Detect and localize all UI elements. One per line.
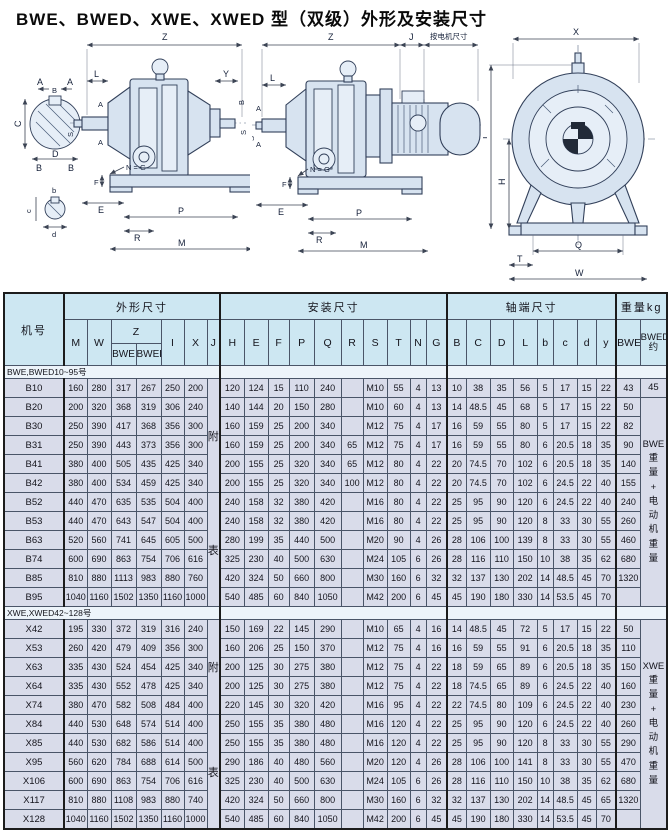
spec-cell: 48.5 — [553, 569, 577, 588]
spec-cell: 40 — [596, 474, 616, 493]
model-cell: B95 — [4, 588, 64, 607]
col-header-y: y — [596, 320, 616, 366]
spec-cell: 6 — [537, 474, 553, 493]
spec-cell: 1160 — [87, 588, 111, 607]
spec-cell: 680 — [616, 550, 640, 569]
spec-cell: 250 — [220, 734, 244, 753]
spec-cell: 22 — [426, 455, 447, 474]
spec-cell — [341, 734, 363, 753]
spec-cell: 62 — [596, 772, 616, 791]
dim-label-A: A — [37, 77, 43, 87]
spec-cell: 6 — [537, 455, 553, 474]
spec-cell: 53.5 — [553, 810, 577, 830]
spec-cell: 1050 — [314, 588, 341, 607]
spec-cell: 280 — [220, 531, 244, 550]
spec-cell: 1050 — [314, 810, 341, 830]
dim-label-R: R — [134, 233, 141, 243]
dim-label-L: L — [270, 73, 275, 83]
spec-cell: 186 — [244, 753, 268, 772]
spec-cell: 400 — [184, 696, 207, 715]
group-header-shaft: 轴端尺寸 — [447, 293, 616, 320]
model-cell: X95 — [4, 753, 64, 772]
section-filler — [220, 607, 447, 620]
spec-cell: 1320 — [616, 569, 640, 588]
spec-cell: 480 — [314, 734, 341, 753]
drawing-bwe-side-view: A A B C D B B b c d — [10, 27, 250, 289]
spec-cell: 400 — [184, 734, 207, 753]
section-header-row: BWE,BWED10~95号 — [4, 366, 667, 379]
spec-cell: 754 — [136, 550, 161, 569]
spec-cell: 32 — [268, 512, 289, 531]
spec-cell: 16 — [447, 436, 466, 455]
spec-cell: 22 — [268, 620, 289, 639]
spec-cell: 25 — [268, 417, 289, 436]
spec-cell — [341, 569, 363, 588]
spec-cell — [341, 493, 363, 512]
spec-cell: 56 — [513, 379, 537, 398]
spec-cell: 8 — [537, 531, 553, 550]
spec-cell: 6 — [537, 658, 553, 677]
spec-cell: 4 — [410, 455, 426, 474]
spec-cell: 4 — [410, 734, 426, 753]
spec-cell: M12 — [363, 455, 387, 474]
dim-label-R: R — [316, 235, 323, 245]
spec-cell: 320 — [87, 398, 111, 417]
section-mark-A: A — [98, 138, 103, 147]
spec-cell: 480 — [314, 715, 341, 734]
spec-cell: 20.5 — [553, 436, 577, 455]
spec-cell: 425 — [161, 455, 184, 474]
spec-cell: 706 — [161, 550, 184, 569]
model-cell: B42 — [4, 474, 64, 493]
spec-cell: 8 — [537, 734, 553, 753]
dim-label-B: B — [237, 100, 246, 105]
spec-cell: 95 — [466, 512, 490, 531]
spec-row: X5326042047940935630016020625150370M1275… — [4, 639, 667, 658]
spec-cell: 425 — [161, 658, 184, 677]
spec-cell: 55 — [596, 734, 616, 753]
spec-cell: 125 — [244, 677, 268, 696]
spec-cell — [341, 696, 363, 715]
section-mark-A: A — [98, 100, 103, 109]
col-header-I: I — [161, 320, 184, 366]
base — [521, 223, 635, 235]
spec-cell: 70 — [490, 474, 513, 493]
spec-cell: 680 — [616, 772, 640, 791]
spec-cell: 45 — [490, 398, 513, 417]
spec-cell: 145 — [289, 620, 314, 639]
spec-cell: 40 — [596, 715, 616, 734]
spec-cell: 380 — [64, 474, 87, 493]
spec-cell: 200 — [220, 474, 244, 493]
spec-cell: 125 — [244, 658, 268, 677]
spec-cell: 35 — [490, 379, 513, 398]
spec-cell: 74.5 — [466, 474, 490, 493]
spec-row: B52440470635535504400表24015832380420M168… — [4, 493, 667, 512]
spec-cell: 55 — [490, 417, 513, 436]
spec-cell: 120 — [513, 734, 537, 753]
spec-cell: 32 — [426, 791, 447, 810]
spec-cell: 90 — [387, 531, 410, 550]
spec-cell: 1502 — [111, 588, 136, 607]
col-header-L: L — [513, 320, 537, 366]
spec-cell: 80 — [387, 474, 410, 493]
spec-cell: M10 — [363, 379, 387, 398]
spec-cell: 6 — [410, 569, 426, 588]
spec-cell: 200 — [289, 417, 314, 436]
spec-cell: 25 — [268, 455, 289, 474]
spec-cell: 80 — [387, 512, 410, 531]
spec-cell: 75 — [387, 639, 410, 658]
spec-cell: 688 — [136, 753, 161, 772]
spec-cell: 800 — [314, 569, 341, 588]
spec-cell: 22 — [447, 696, 466, 715]
spec-cell: 35 — [596, 455, 616, 474]
spec-cell: 24.5 — [553, 493, 577, 512]
spec-cell — [341, 620, 363, 639]
spec-cell: 800 — [314, 791, 341, 810]
dim-label-W: W — [575, 268, 584, 278]
spec-cell: 48.5 — [466, 620, 490, 639]
spec-cell: 32 — [268, 493, 289, 512]
spec-cell: 600 — [64, 772, 87, 791]
model-cell: B41 — [4, 455, 64, 474]
spec-cell: 25 — [447, 493, 466, 512]
spec-cell: 160 — [387, 791, 410, 810]
spec-cell: 22 — [426, 512, 447, 531]
spec-cell: 200 — [387, 810, 410, 830]
spec-cell: 480 — [289, 753, 314, 772]
dim-label-J: J — [409, 32, 414, 42]
spec-cell: 330 — [87, 620, 111, 639]
spec-cell: 90 — [490, 734, 513, 753]
lifting-eyebolt — [340, 61, 356, 77]
spec-cell: 390 — [87, 436, 111, 455]
model-cell: B31 — [4, 436, 64, 455]
dim-label-S: S — [66, 132, 75, 137]
spec-cell: 250 — [64, 417, 87, 436]
spec-cell: 45 — [577, 569, 596, 588]
spec-cell: 300 — [184, 436, 207, 455]
spec-cell: 22 — [426, 715, 447, 734]
dim-label-B: B — [68, 163, 74, 173]
spec-cell: 105 — [387, 550, 410, 569]
spec-cell: 50 — [268, 791, 289, 810]
spec-row: X10660069086375470661632523040500630M241… — [4, 772, 667, 791]
spec-cell: 141 — [513, 753, 537, 772]
col-header-c: c — [553, 320, 577, 366]
spec-cell: 199 — [244, 531, 268, 550]
spec-cell: 514 — [161, 715, 184, 734]
spec-cell: 90 — [490, 512, 513, 531]
spec-cell: 22 — [426, 658, 447, 677]
model-cell: B52 — [4, 493, 64, 512]
spec-row: X128104011601502135011601000540485608401… — [4, 810, 667, 830]
spec-cell: 240 — [220, 512, 244, 531]
shaft-section-detail — [30, 99, 80, 149]
dim-label-A: A — [67, 77, 73, 87]
col-header-F: F — [268, 320, 289, 366]
spec-cell: 380 — [64, 455, 87, 474]
dim-label-M: M — [360, 240, 368, 250]
spec-cell: 6 — [537, 639, 553, 658]
dim-label-E: E — [278, 207, 284, 217]
spec-cell: 158 — [244, 493, 268, 512]
spec-cell: 35 — [268, 531, 289, 550]
spec-cell: 70 — [596, 810, 616, 830]
spec-cell: 540 — [220, 588, 244, 607]
spec-cell: 38 — [553, 550, 577, 569]
spec-cell: 24.5 — [553, 677, 577, 696]
group-header-weight: 重量kg — [616, 293, 667, 320]
spec-cell: 145 — [244, 696, 268, 715]
spec-cell: 33 — [553, 531, 577, 550]
spec-row: B312503904433733563001601592520034065M12… — [4, 436, 667, 455]
spec-cell: 5 — [537, 417, 553, 436]
spec-cell: 290 — [314, 620, 341, 639]
spec-row: B7460069086375470661632523040500630M2410… — [4, 550, 667, 569]
spec-cell: 390 — [87, 417, 111, 436]
spec-cell: 4 — [410, 512, 426, 531]
spec-cell: 13 — [426, 379, 447, 398]
spec-cell: 33 — [553, 512, 577, 531]
spec-cell: 26 — [426, 753, 447, 772]
spec-cell: 30 — [577, 753, 596, 772]
spec-cell: 137 — [466, 791, 490, 810]
spec-cell: 55 — [490, 436, 513, 455]
spec-cell: 45 — [426, 810, 447, 830]
spec-cell: 267 — [136, 379, 161, 398]
spec-cell: 645 — [136, 531, 161, 550]
spec-cell: 180 — [490, 588, 513, 607]
spec-cell: 6 — [537, 436, 553, 455]
spec-cell: 14 — [447, 398, 466, 417]
spec-cell: 32 — [426, 569, 447, 588]
spec-cell: 340 — [314, 474, 341, 493]
spec-cell: 22 — [596, 417, 616, 436]
spec-cell: 40 — [268, 550, 289, 569]
spec-cell: 485 — [244, 588, 268, 607]
spec-cell: 240 — [184, 398, 207, 417]
spec-cell: 22 — [577, 677, 596, 696]
spec-cell: 530 — [87, 734, 111, 753]
spec-cell: 30 — [577, 512, 596, 531]
spec-cell: 22 — [577, 696, 596, 715]
spec-cell: 22 — [426, 493, 447, 512]
spec-cell: 159 — [244, 417, 268, 436]
spec-cell: 290 — [616, 734, 640, 753]
j-note-cell: 表 — [207, 715, 220, 830]
spec-cell: 40 — [596, 677, 616, 696]
spec-cell: 250 — [161, 379, 184, 398]
spec-cell: 454 — [136, 658, 161, 677]
spec-cell: 200 — [387, 588, 410, 607]
spec-row: X6333543052445442534020012530275380M1275… — [4, 658, 667, 677]
spec-cell: 230 — [616, 696, 640, 715]
spec-cell: 158 — [244, 512, 268, 531]
model-cell: B63 — [4, 531, 64, 550]
spec-cell: 4 — [410, 474, 426, 493]
motor-end-cap — [440, 103, 480, 155]
spec-cell: 40 — [268, 772, 289, 791]
spec-cell: 150 — [289, 639, 314, 658]
spec-cell — [341, 677, 363, 696]
col-header-H: H — [220, 320, 244, 366]
spec-cell: 524 — [111, 658, 136, 677]
spec-cell: 22 — [577, 493, 596, 512]
spec-cell: 5 — [537, 398, 553, 417]
spec-cell — [341, 531, 363, 550]
spec-cell: 459 — [136, 474, 161, 493]
spec-cell: 16 — [426, 639, 447, 658]
spec-table: 机号 外形尺寸 安装尺寸 轴端尺寸 重量kg M W Z I X J H E F… — [3, 292, 668, 830]
spec-cell: 484 — [161, 696, 184, 715]
spec-cell: 6 — [410, 772, 426, 791]
spec-cell: 290 — [220, 753, 244, 772]
spec-cell: 6 — [537, 493, 553, 512]
spec-cell: 5 — [537, 379, 553, 398]
spec-cell: 485 — [244, 810, 268, 830]
spec-cell: 105 — [387, 772, 410, 791]
spec-cell: 65 — [341, 455, 363, 474]
spec-cell: 38 — [466, 379, 490, 398]
spec-cell: 508 — [136, 696, 161, 715]
spec-cell: 380 — [289, 715, 314, 734]
spec-cell — [341, 639, 363, 658]
group-header-install: 安装尺寸 — [220, 293, 447, 320]
spec-cell: 10 — [447, 379, 466, 398]
dim-label-b: b — [52, 186, 56, 195]
spec-cell: 110 — [490, 772, 513, 791]
spec-cell: 1040 — [64, 588, 87, 607]
spec-cell: 15 — [577, 417, 596, 436]
spec-cell: M16 — [363, 512, 387, 531]
model-cell: X42 — [4, 620, 64, 639]
spec-cell: 1350 — [136, 588, 161, 607]
spec-cell: 478 — [136, 677, 161, 696]
spec-cell: 754 — [136, 772, 161, 791]
spec-cell: 80 — [490, 696, 513, 715]
spec-cell: 160 — [616, 677, 640, 696]
spec-cell: 106 — [466, 753, 490, 772]
spec-cell: 70 — [596, 588, 616, 607]
spec-cell: 25 — [268, 639, 289, 658]
spec-cell: 28 — [447, 550, 466, 569]
spec-cell: 582 — [111, 696, 136, 715]
spec-cell: 500 — [184, 753, 207, 772]
spec-cell: M20 — [363, 753, 387, 772]
col-header-S: S — [363, 320, 387, 366]
dim-label-S: S — [239, 130, 248, 135]
spec-cell: 520 — [64, 531, 87, 550]
spec-cell: 535 — [136, 493, 161, 512]
spec-cell: 20 — [447, 455, 466, 474]
spec-cell: 22 — [577, 474, 596, 493]
model-cell: B20 — [4, 398, 64, 417]
spec-cell: 4 — [410, 620, 426, 639]
spec-cell: 760 — [184, 569, 207, 588]
spec-cell: 14 — [537, 791, 553, 810]
spec-cell: M12 — [363, 417, 387, 436]
spec-cell: 420 — [314, 493, 341, 512]
spec-cell: 504 — [161, 493, 184, 512]
spec-cell: 90 — [490, 493, 513, 512]
spec-cell: 200 — [184, 379, 207, 398]
support-leg — [517, 185, 541, 223]
spec-cell: 120 — [387, 753, 410, 772]
spec-row: B2020032036831930624014014420150280M1060… — [4, 398, 667, 417]
spec-cell: 616 — [184, 772, 207, 791]
spec-cell: 120 — [220, 379, 244, 398]
spec-cell: 14 — [537, 588, 553, 607]
spec-cell: 605 — [161, 531, 184, 550]
spec-cell: 70 — [596, 569, 616, 588]
col-header-Z: Z — [111, 320, 161, 344]
spec-cell: 4 — [410, 493, 426, 512]
dim-label-F: F — [282, 180, 287, 189]
section-mark-A: A — [256, 104, 261, 113]
spec-cell: M16 — [363, 493, 387, 512]
spec-cell: 16 — [447, 417, 466, 436]
spec-cell: 4 — [410, 715, 426, 734]
spec-cell: M20 — [363, 531, 387, 550]
spec-cell: 26 — [426, 772, 447, 791]
spec-cell: 16 — [426, 620, 447, 639]
spec-cell: 500 — [289, 772, 314, 791]
spec-cell: 600 — [64, 550, 87, 569]
spec-cell — [341, 550, 363, 569]
spec-cell: 340 — [314, 436, 341, 455]
spec-cell: 50 — [616, 620, 640, 639]
spec-cell: M12 — [363, 436, 387, 455]
spec-cell: 460 — [616, 531, 640, 550]
spec-cell: 380 — [289, 734, 314, 753]
spec-row: X8544053068258651440025015535380480M1612… — [4, 734, 667, 753]
spec-cell: 89 — [513, 658, 537, 677]
spec-cell: 230 — [244, 550, 268, 569]
model-cell: X53 — [4, 639, 64, 658]
model-cell: X106 — [4, 772, 64, 791]
spec-cell: 4 — [410, 696, 426, 715]
spec-cell: 155 — [244, 455, 268, 474]
spec-cell: 840 — [289, 588, 314, 607]
spec-cell: 130 — [490, 569, 513, 588]
motor-size-note: 按电机尺寸 — [430, 31, 468, 41]
spec-cell: 420 — [314, 696, 341, 715]
spec-cell: 17 — [553, 417, 577, 436]
section-header-row: XWE,XWED42~128号 — [4, 607, 667, 620]
spec-cell: 62 — [596, 550, 616, 569]
spec-cell: 260 — [64, 639, 87, 658]
spec-cell: 340 — [184, 455, 207, 474]
spec-cell: 180 — [490, 810, 513, 830]
spec-cell: 316 — [161, 620, 184, 639]
spec-cell: M24 — [363, 772, 387, 791]
spec-cell: 50 — [268, 569, 289, 588]
spec-cell: 45 — [426, 588, 447, 607]
spec-cell: 368 — [136, 417, 161, 436]
spec-cell: 160 — [387, 569, 410, 588]
bwed-weight-cell: 45 — [640, 379, 667, 398]
spec-cell: 74.5 — [466, 677, 490, 696]
spec-cell: 4 — [410, 658, 426, 677]
spec-cell: 110 — [289, 379, 314, 398]
model-cell: B10 — [4, 379, 64, 398]
spec-cell: M10 — [363, 620, 387, 639]
spec-cell: 26 — [426, 531, 447, 550]
spec-cell: 6 — [537, 677, 553, 696]
spec-row: X9556062078468861450029018640480560M2012… — [4, 753, 667, 772]
